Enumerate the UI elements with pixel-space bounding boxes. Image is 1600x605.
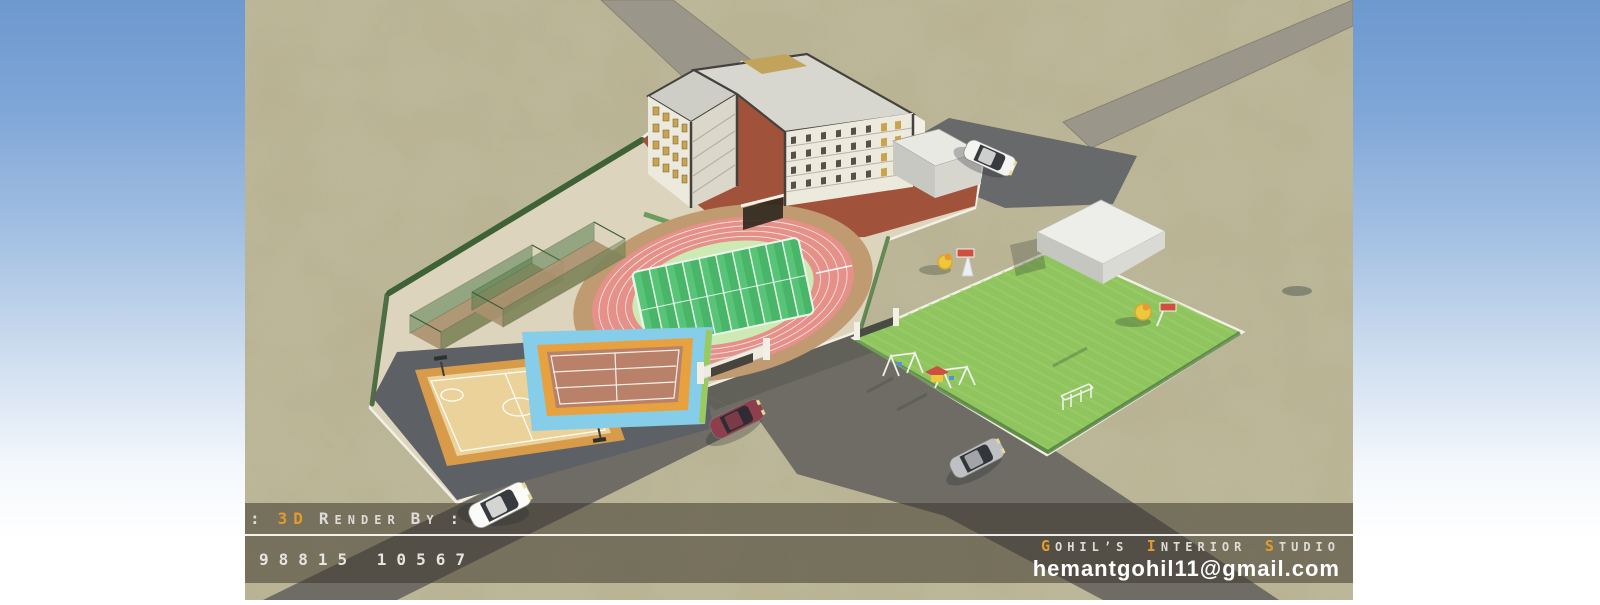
studio-email: hemantgohil11@gmail.com [1027,557,1340,580]
render-by-word: RENDER [319,509,401,529]
ground-shadow-blob [1282,286,1312,296]
credit-bar-bottom: 98815 10567 GOHIL’S INTERIOR STUDIO hema… [245,536,1353,583]
colon-suffix: : [450,509,466,528]
render-by-word: BY [411,509,440,529]
colon-prefix: : [250,509,266,528]
credit-bar-top: : 3D RENDER BY : [245,503,1353,534]
render-by-3d-highlight: 3D [278,509,309,528]
studio-name: GOHIL’S INTERIOR STUDIO [1027,539,1340,556]
phone-number: 98815 10567 [259,550,475,569]
badminton-court [522,327,713,431]
studio-credit-block: GOHIL’S INTERIOR STUDIO hemantgohil11@gm… [1027,539,1340,581]
page: : 3D RENDER BY : 98815 10567 GOHIL’S INT… [0,0,1600,600]
